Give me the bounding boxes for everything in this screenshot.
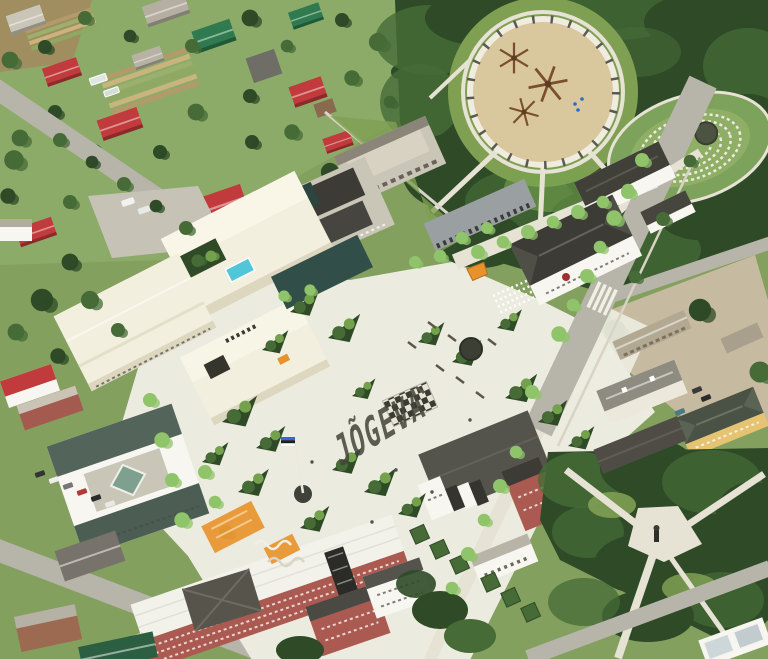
aerial-photo: JÕGEVA bbox=[0, 0, 768, 659]
estonian-flag bbox=[281, 437, 295, 447]
white-house-west bbox=[0, 219, 32, 241]
circular-playground bbox=[470, 19, 616, 165]
monument bbox=[654, 525, 660, 542]
building-emblem bbox=[562, 273, 570, 281]
screenshot: JÕGEVA bbox=[0, 0, 768, 659]
fountain bbox=[460, 338, 482, 360]
